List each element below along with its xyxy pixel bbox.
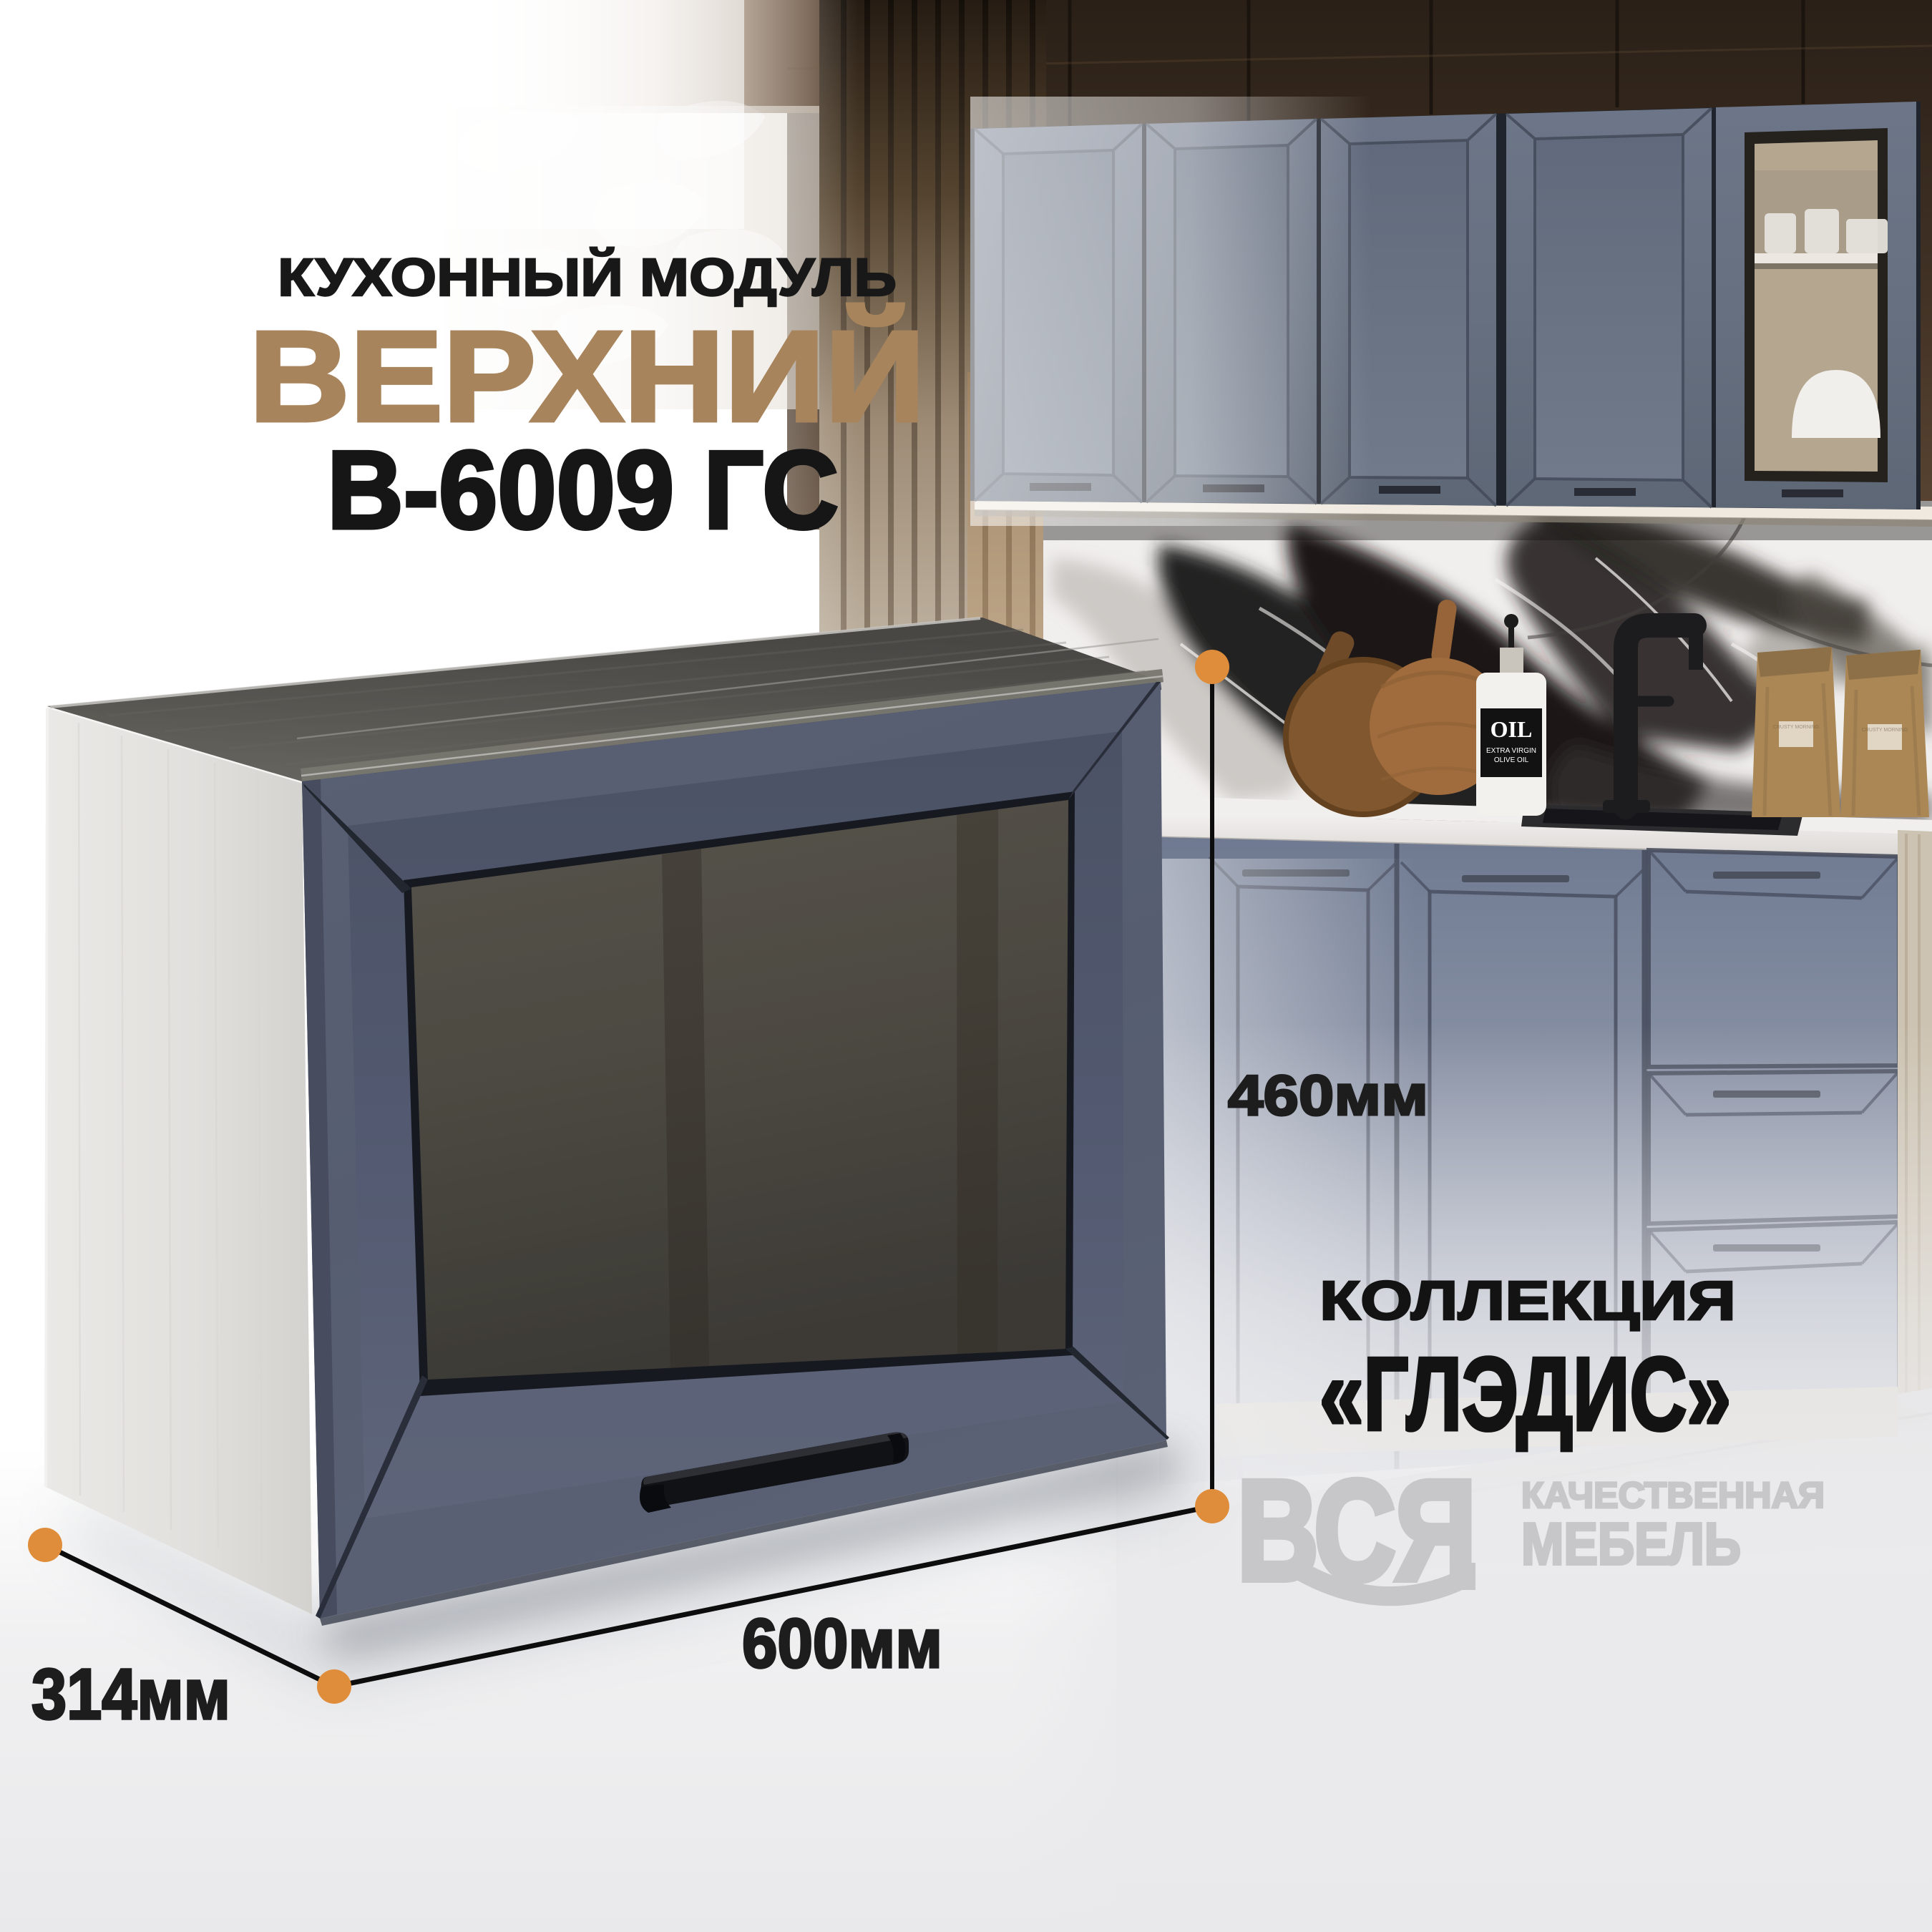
svg-text:OLIVE OIL: OLIVE OIL <box>1494 756 1529 764</box>
svg-text:OIL: OIL <box>1491 716 1533 742</box>
svg-text:КУХОННЫЙ МОДУЛЬ: КУХОННЫЙ МОДУЛЬ <box>278 247 897 307</box>
svg-text:314мм: 314мм <box>31 1654 230 1735</box>
svg-text:В-6009 ГС: В-6009 ГС <box>327 428 839 552</box>
svg-text:ВЕРХНИЙ: ВЕРХНИЙ <box>249 304 925 449</box>
svg-text:CRUSTY MORNING: CRUSTY MORNING <box>1862 728 1908 733</box>
svg-text:«ГЛЭДИС»: «ГЛЭДИС» <box>1319 1336 1731 1452</box>
svg-text:CRUSTY MORNING: CRUSTY MORNING <box>1773 725 1819 730</box>
svg-text:460мм: 460мм <box>1228 1063 1428 1127</box>
svg-text:600мм: 600мм <box>742 1604 942 1682</box>
svg-text:КАЧЕСТВЕННАЯ: КАЧЕСТВЕННАЯ <box>1521 1475 1825 1516</box>
svg-text:EXTRA VIRGIN: EXTRA VIRGIN <box>1486 747 1536 755</box>
svg-text:КОЛЛЕКЦИЯ: КОЛЛЕКЦИЯ <box>1319 1270 1736 1332</box>
svg-text:МЕБЕЛЬ: МЕБЕЛЬ <box>1521 1511 1741 1577</box>
